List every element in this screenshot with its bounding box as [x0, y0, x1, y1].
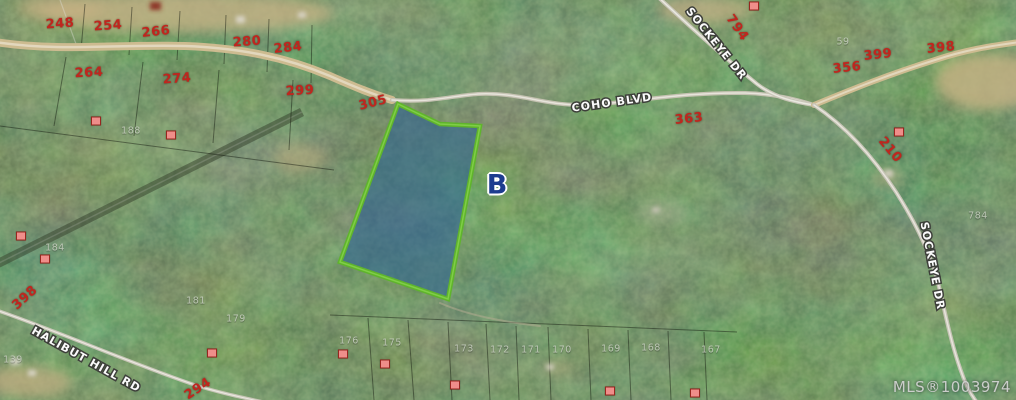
- aerial-map[interactable]: COHO BLVD SOCKEYE DR SOCKEYE DR HALIBUT …: [0, 0, 1016, 400]
- map-canvas: COHO BLVD SOCKEYE DR SOCKEYE DR HALIBUT …: [0, 0, 1016, 400]
- forest-canopy-texture: [0, 0, 1016, 400]
